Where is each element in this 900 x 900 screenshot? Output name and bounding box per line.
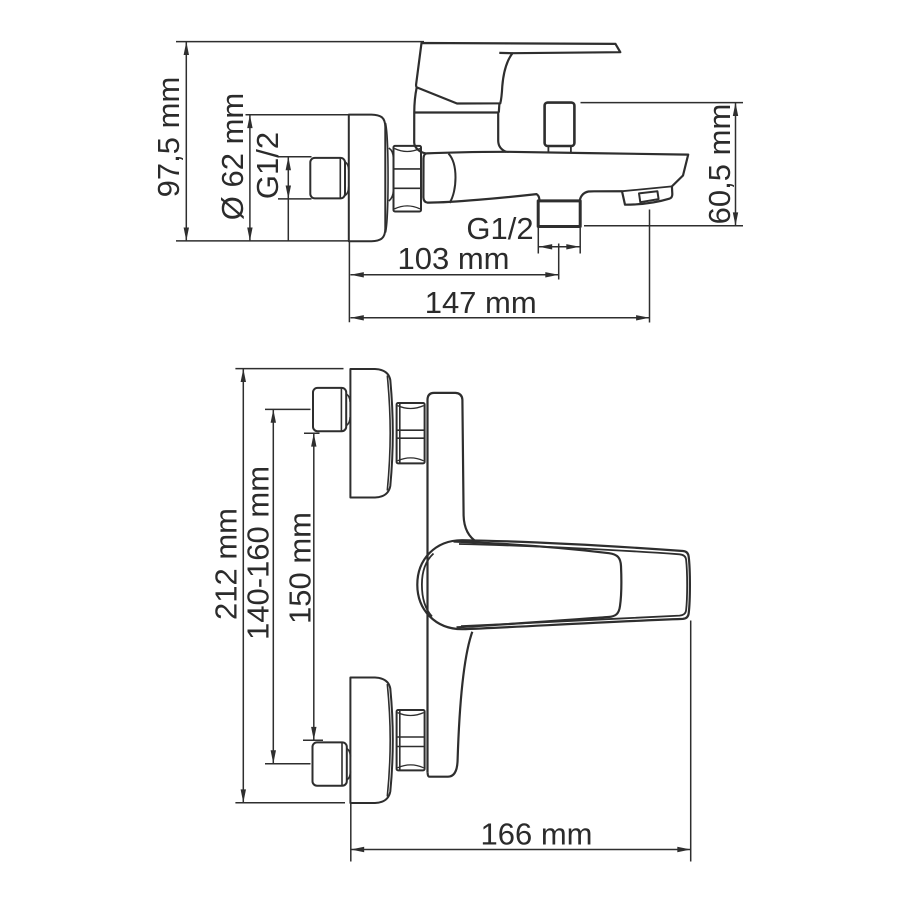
svg-text:103 mm: 103 mm [398, 241, 510, 276]
svg-text:60,5 mm: 60,5 mm [702, 104, 737, 225]
svg-text:Ø 62 mm: Ø 62 mm [215, 93, 250, 220]
svg-text:G1/2: G1/2 [250, 132, 285, 199]
svg-text:140-160 mm: 140-160 mm [241, 466, 276, 640]
svg-text:147 mm: 147 mm [425, 285, 537, 320]
svg-text:150 mm: 150 mm [283, 512, 318, 624]
svg-text:166 mm: 166 mm [481, 817, 593, 852]
svg-text:97,5 mm: 97,5 mm [151, 77, 186, 198]
svg-text:212 mm: 212 mm [209, 508, 244, 620]
